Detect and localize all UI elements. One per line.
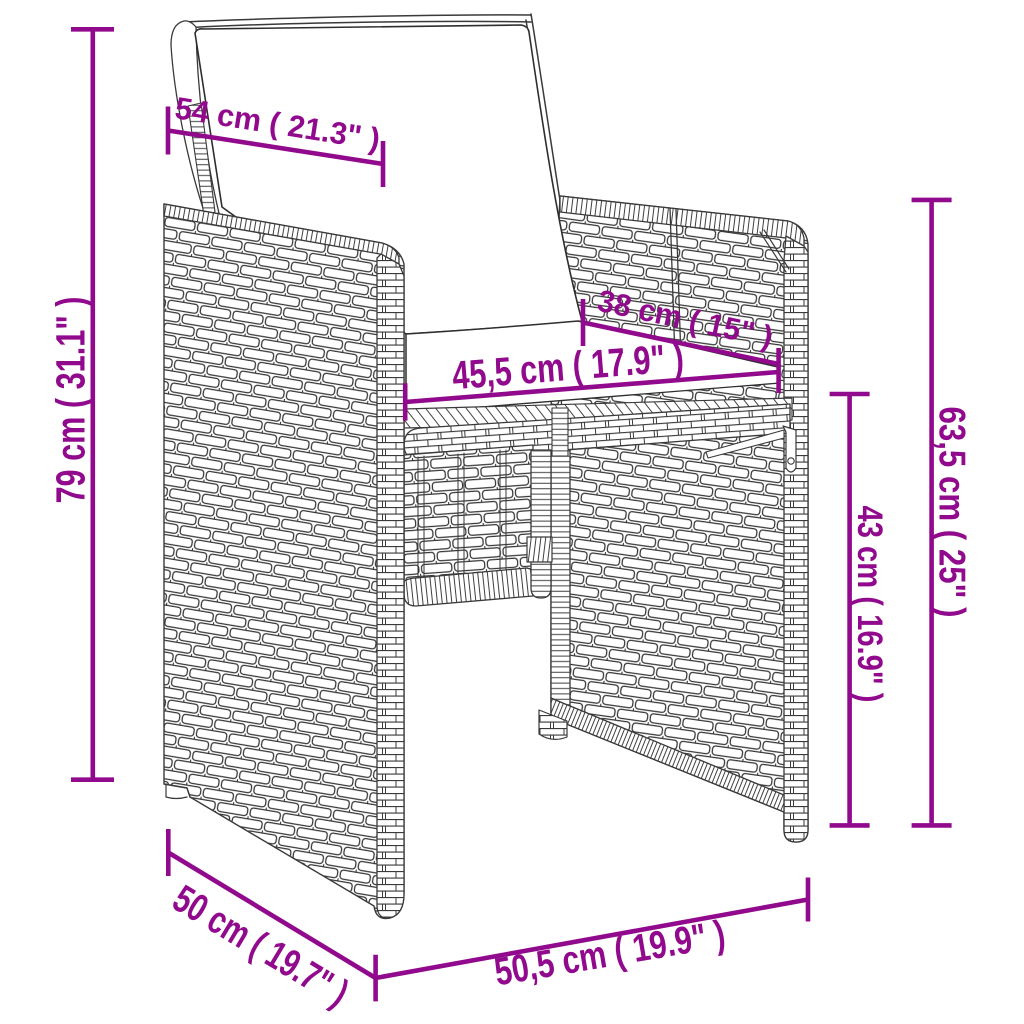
svg-text:43 cm ( 16.9" ): 43 cm ( 16.9" ) xyxy=(850,506,889,703)
svg-text:79 cm ( 31.1" ): 79 cm ( 31.1" ) xyxy=(47,297,93,504)
svg-text:63,5 cm ( 25" ): 63,5 cm ( 25" ) xyxy=(932,407,973,618)
